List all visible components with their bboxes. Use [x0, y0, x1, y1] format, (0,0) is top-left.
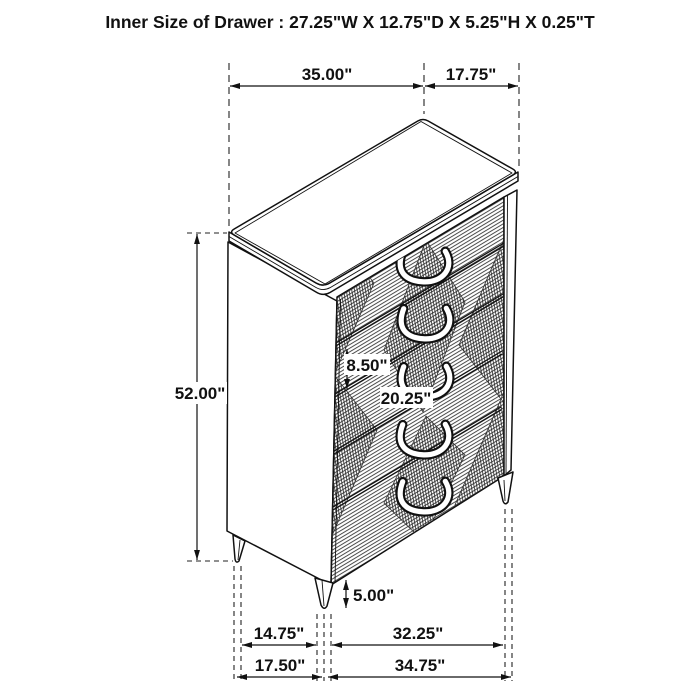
dim-label-base-width: 34.75": [395, 656, 446, 675]
dimension-diagram: Inner Size of Drawer : 27.25"W X 12.75"D…: [0, 0, 700, 700]
dim-label-leg-height: 5.00": [353, 586, 394, 605]
dim-label-top-width: 35.00": [302, 65, 353, 84]
dim-label-overall-height: 52.00": [175, 384, 226, 403]
dim-label-top-depth: 17.75": [446, 65, 497, 84]
dim-label-base-depth: 17.50": [255, 656, 306, 675]
dim-label-base-leg-to-leg: 32.25": [393, 624, 444, 643]
chest-line-drawing: Inner Size of Drawer : 27.25"W X 12.75"D…: [0, 0, 700, 700]
page-title: Inner Size of Drawer : 27.25"W X 12.75"D…: [105, 12, 595, 32]
dim-label-drawer-height: 8.50": [346, 356, 387, 375]
dim-label-drawer-width: 20.25": [381, 389, 432, 408]
dim-label-base-side-to-leg: 14.75": [254, 624, 305, 643]
